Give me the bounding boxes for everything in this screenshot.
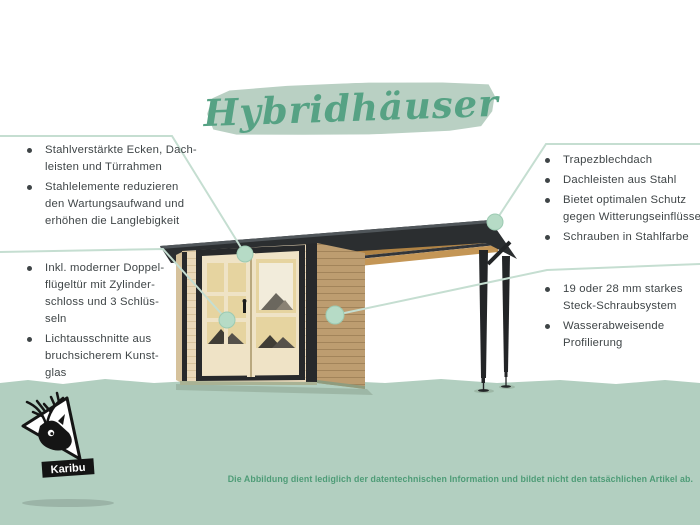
canopy-posts	[478, 242, 511, 392]
callout-double-door: Inkl. moderner Doppel- flügeltür mit Zyl…	[27, 260, 187, 385]
list-item: Dachleisten aus Stahl	[545, 172, 697, 189]
double-door	[196, 245, 305, 381]
list-item: Stahlelemente reduzieren den Wartungsauf…	[27, 179, 197, 230]
bullet-icon	[27, 185, 32, 190]
list-item: 19 oder 28 mm starkes Steck-Schraubsyste…	[545, 281, 697, 315]
list-item: Trapezblechdach	[545, 152, 697, 169]
list-item: Bietet optimalen Schutz gegen Witterungs…	[545, 192, 697, 226]
callout-wall-system: 19 oder 28 mm starkes Steck-Schraubsyste…	[545, 281, 697, 355]
callout-roof: Trapezblechdach Dachleisten aus Stahl Bi…	[545, 152, 697, 249]
logo-brand-label: Karibu	[50, 462, 86, 476]
bullet-icon	[545, 178, 550, 183]
list-item: Wasserabweisende Profilierung	[545, 318, 697, 352]
bullet-icon	[545, 198, 550, 203]
bullet-icon	[545, 158, 550, 163]
bullet-icon	[27, 337, 32, 342]
karibu-logo: Karibu	[22, 393, 114, 507]
list-item: Lichtausschnitte aus bruchsicherem Kunst…	[27, 331, 187, 382]
bullet-icon	[27, 148, 32, 153]
bullet-icon	[545, 287, 550, 292]
bullet-icon	[545, 235, 550, 240]
list-item: Schrauben in Stahlfarbe	[545, 229, 697, 246]
bullet-icon	[545, 324, 550, 329]
disclaimer-text: Die Abbildung dient lediglich der datent…	[173, 474, 693, 484]
list-item: Inkl. moderner Doppel- flügeltür mit Zyl…	[27, 260, 187, 328]
callout-steel-elements: Stahlverstärkte Ecken, Dach- leisten und…	[27, 142, 197, 233]
list-item: Stahlverstärkte Ecken, Dach- leisten und…	[27, 142, 197, 176]
bullet-icon	[27, 266, 32, 271]
